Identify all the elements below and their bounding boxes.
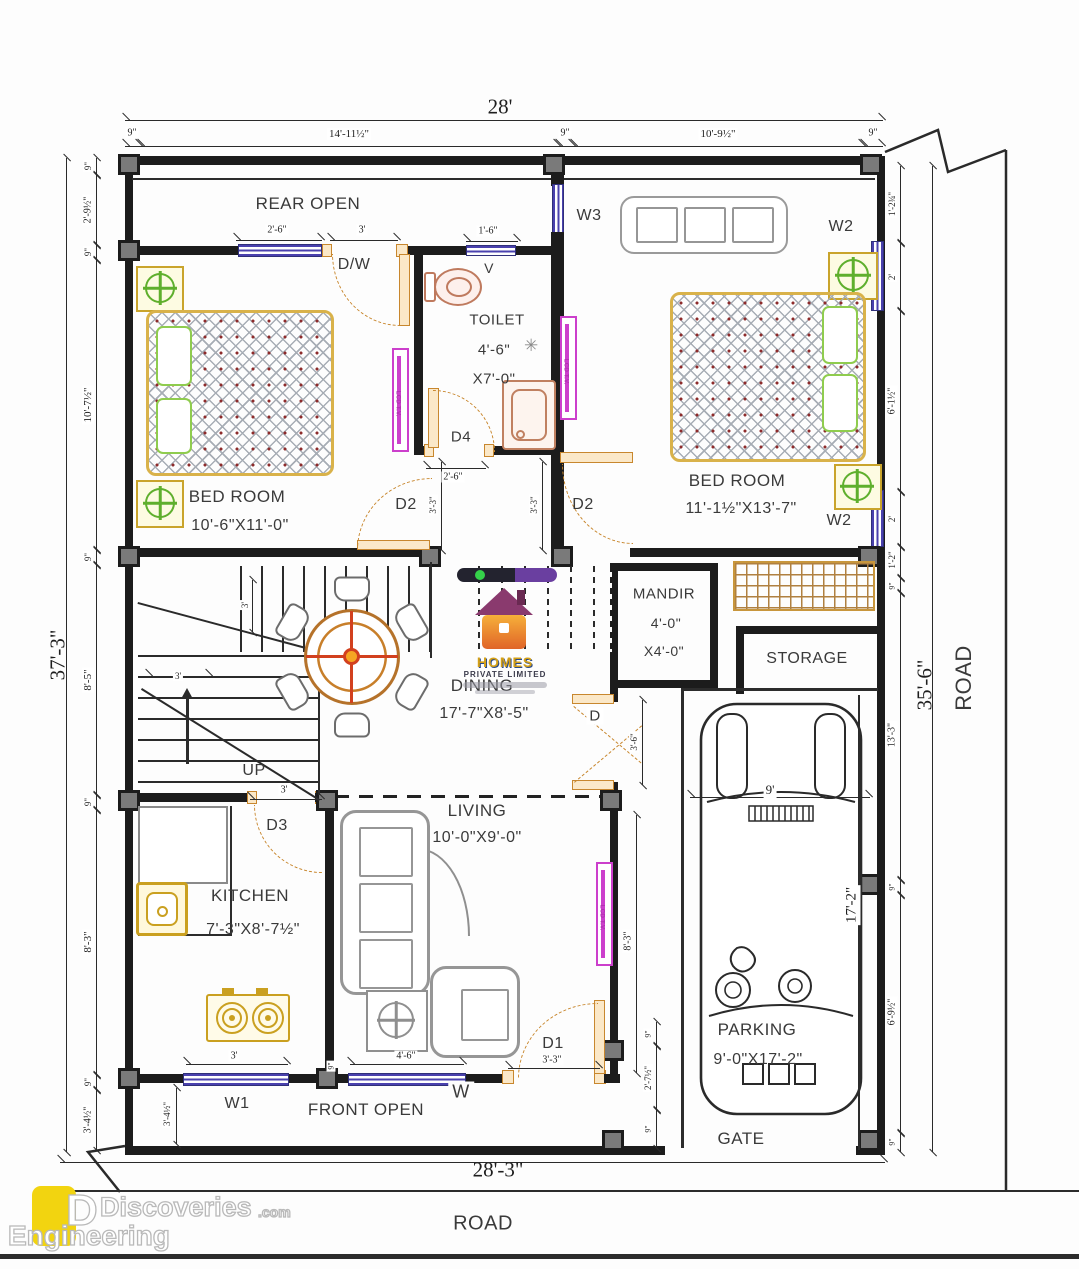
- dimension-label: 2'-6": [441, 472, 464, 483]
- dimension-label: 9": [558, 128, 571, 139]
- dimension-line: [125, 146, 140, 147]
- dimension-label: 9": [125, 128, 138, 139]
- door-label-d3: D3: [266, 817, 287, 835]
- wardrobe-tv-unit: LCD T.V.: [596, 862, 613, 966]
- dimension-label: 2'-6": [265, 225, 288, 236]
- dimension-label: 14'-11½": [327, 128, 371, 140]
- room-label-bedroom1: BED ROOM: [189, 487, 286, 507]
- room-size-mandir-w: 4'-0": [651, 615, 681, 631]
- dimension-label: 3': [279, 785, 290, 796]
- dimension-line: [656, 1110, 657, 1148]
- watermark-line2: PRIVATE LIMITED: [453, 670, 557, 679]
- dimension-label: 3': [357, 225, 368, 236]
- dimension-line: [96, 810, 97, 1075]
- dimension-label: 28': [486, 95, 515, 120]
- dimension-line: [96, 260, 97, 550]
- dimension-line: [186, 1064, 288, 1065]
- dimension-line: [573, 146, 863, 147]
- tv-label: LCD T.V.: [598, 905, 605, 931]
- dimension-label: 1'-2¾": [887, 190, 897, 218]
- room-size-bedroom2: 11'-1½"X13'-7": [685, 500, 796, 518]
- dimension-label: 3'-3": [529, 494, 539, 515]
- room-size-toilet-w: 4'-6": [478, 342, 510, 359]
- room-label-living: LIVING: [448, 801, 507, 821]
- dimension-label: 2': [887, 514, 897, 524]
- window-label-w2: W2: [827, 512, 852, 530]
- dimension-line: [656, 1046, 657, 1110]
- dimension-line: [236, 240, 322, 241]
- dimension-label: 28'-3": [471, 1158, 526, 1183]
- dimension-line: [96, 175, 97, 245]
- dimension-line: [542, 462, 543, 550]
- vent-label: V: [484, 260, 494, 276]
- dimension-line: [690, 797, 870, 798]
- dimension-label: 1'-6": [476, 226, 499, 237]
- dimension-label: 9": [83, 160, 93, 172]
- watermark-blur-bar: [463, 682, 547, 688]
- dimension-label: 6'-9½": [887, 997, 898, 1028]
- room-size-parking: 9'-0"X17'-2": [713, 1051, 802, 1069]
- builder-watermark: HOMES PRIVATE LIMITED: [453, 566, 571, 696]
- road-bottom-label: ROAD: [453, 1213, 513, 1236]
- room-label-toilet: TOILET: [469, 312, 524, 329]
- brand-suffix: .com: [258, 1204, 291, 1220]
- dimension-line: [330, 240, 398, 241]
- dimension-line: [656, 1022, 657, 1046]
- dimension-label: 9": [83, 796, 93, 808]
- dimension-label: 3': [229, 1051, 240, 1062]
- dimension-label: 37'-3": [46, 628, 71, 683]
- room-label-front-open: FRONT OPEN: [308, 1100, 424, 1120]
- window-label-w2: W2: [829, 218, 854, 236]
- dimension-label: 9": [83, 246, 93, 258]
- house-logo-chimney: [517, 590, 525, 605]
- window-label-w3: W3: [577, 207, 602, 225]
- dimension-label: 8'-5": [82, 667, 94, 692]
- floor-plan: LCD T.V. LCD T.V. ✳: [0, 0, 1079, 1269]
- dimension-label: 9": [866, 128, 879, 139]
- dimension-line: [900, 243, 901, 311]
- phone-banner: [457, 568, 557, 582]
- up-label: UP: [242, 762, 265, 780]
- dimension-line: [900, 166, 901, 243]
- wardrobe-tv-unit: LCD T.V.: [392, 348, 409, 452]
- brand-word2: Engineering: [8, 1220, 170, 1252]
- dimension-label: 3'-3": [540, 1055, 563, 1066]
- dimension-line: [900, 593, 901, 880]
- door-label-d2: D2: [395, 496, 416, 514]
- room-size-dining: 17'-7"X8'-5": [439, 705, 528, 723]
- watermark-line1: HOMES: [453, 654, 557, 670]
- dimension-line: [176, 1088, 177, 1144]
- dimension-label: 8'-3": [623, 929, 634, 952]
- dimension-label: 9": [327, 1060, 336, 1071]
- gate-label: GATE: [717, 1129, 764, 1149]
- brand-word1: Discoveries: [100, 1192, 252, 1223]
- tv-label: LCD T.V.: [562, 359, 569, 385]
- dimension-label: 9": [888, 580, 897, 591]
- dimension-line: [140, 146, 558, 147]
- room-label-bedroom2: BED ROOM: [689, 471, 786, 491]
- dimension-label: 9": [888, 1136, 897, 1147]
- door-label-d4: D4: [451, 429, 471, 446]
- room-label-parking: PARKING: [718, 1020, 797, 1040]
- dimension-line: [900, 492, 901, 547]
- door-label-d1: D1: [542, 1035, 563, 1053]
- door-label-d2: D2: [572, 496, 593, 514]
- room-label-storage: STORAGE: [766, 650, 847, 668]
- dimension-line: [508, 1068, 600, 1069]
- road-right-label: ROAD: [951, 645, 977, 711]
- dimension-line: [252, 580, 253, 632]
- room-label-kitchen: KITCHEN: [211, 886, 289, 906]
- dimension-line: [900, 311, 901, 492]
- dimension-label: 3': [173, 671, 183, 681]
- room-size-bedroom1: 10'-6"X11'-0": [191, 517, 289, 535]
- dimension-label: 3'-6": [629, 731, 639, 752]
- watermark-blur-bar: [475, 690, 535, 694]
- dimension-line: [426, 468, 486, 469]
- door-label-dw: D/W: [338, 256, 371, 274]
- dimension-line: [900, 1133, 901, 1152]
- window-label-w: W: [448, 1082, 474, 1103]
- dimension-label: 9": [644, 1123, 653, 1134]
- dimension-label: 2': [887, 272, 897, 282]
- house-logo-body: [482, 615, 526, 649]
- dimension-label: 2'-7½": [643, 1064, 653, 1092]
- dimension-label: 17'-2": [844, 885, 861, 925]
- room-size-mandir-l: X4'-0": [644, 643, 684, 659]
- dimension-label: 8'-3": [82, 929, 94, 954]
- house-logo-window: [499, 623, 509, 633]
- dimension-label: 9": [888, 881, 897, 892]
- dimension-label: 13'-3": [887, 721, 898, 749]
- dimension-line: [558, 146, 573, 147]
- dimension-label: 9": [644, 1028, 653, 1039]
- dimension-label: 4'-6": [394, 1051, 417, 1062]
- dimension-line: [96, 565, 97, 795]
- dimension-label: 3'-4½": [83, 1105, 94, 1136]
- room-size-kitchen: 7'-3"X8'-7½": [206, 921, 300, 939]
- dimension-line: [863, 146, 883, 147]
- dimension-label: 9": [83, 1076, 93, 1088]
- dimension-label: 6'-1½": [887, 386, 898, 417]
- dimension-line: [642, 700, 643, 785]
- phone-icon: [475, 570, 485, 580]
- dimension-line: [900, 547, 901, 578]
- room-size-living: 10'-0"X9'-0": [432, 829, 521, 847]
- dimension-label: 2'-9½": [83, 195, 94, 226]
- dimension-label: 3'-4½": [162, 1100, 172, 1128]
- dimension-line: [466, 241, 518, 242]
- dimension-line: [350, 1064, 464, 1065]
- dimension-label: 1'-2": [887, 549, 897, 570]
- dimension-label: 9': [764, 782, 777, 798]
- room-label-mandir: MANDIR: [633, 586, 695, 603]
- room-size-toilet-l: X7'-0": [473, 371, 516, 388]
- tv-label: LCD T.V.: [394, 391, 401, 417]
- dimension-line: [900, 895, 901, 1133]
- wardrobe-tv-unit: LCD T.V.: [560, 316, 577, 420]
- dimension-label: 9": [83, 551, 93, 563]
- dimension-line: [125, 120, 883, 121]
- brand-watermark: E D Discoveries .com Engineering: [0, 1180, 330, 1266]
- room-label-rear-open: REAR OPEN: [256, 194, 361, 214]
- door-label-d: D: [586, 708, 603, 725]
- dimension-line: [250, 799, 322, 800]
- dimension-label: 10'-9½": [699, 128, 738, 140]
- dimension-label: 3'-3": [428, 494, 438, 515]
- dimension-label: 10'-7½": [82, 386, 94, 425]
- dimension-line: [636, 815, 637, 1073]
- dimension-label: 35'-6": [913, 658, 938, 713]
- window-label-w1: W1: [225, 1095, 250, 1113]
- dimension-label: 3': [240, 600, 250, 610]
- dimension-line: [96, 1090, 97, 1150]
